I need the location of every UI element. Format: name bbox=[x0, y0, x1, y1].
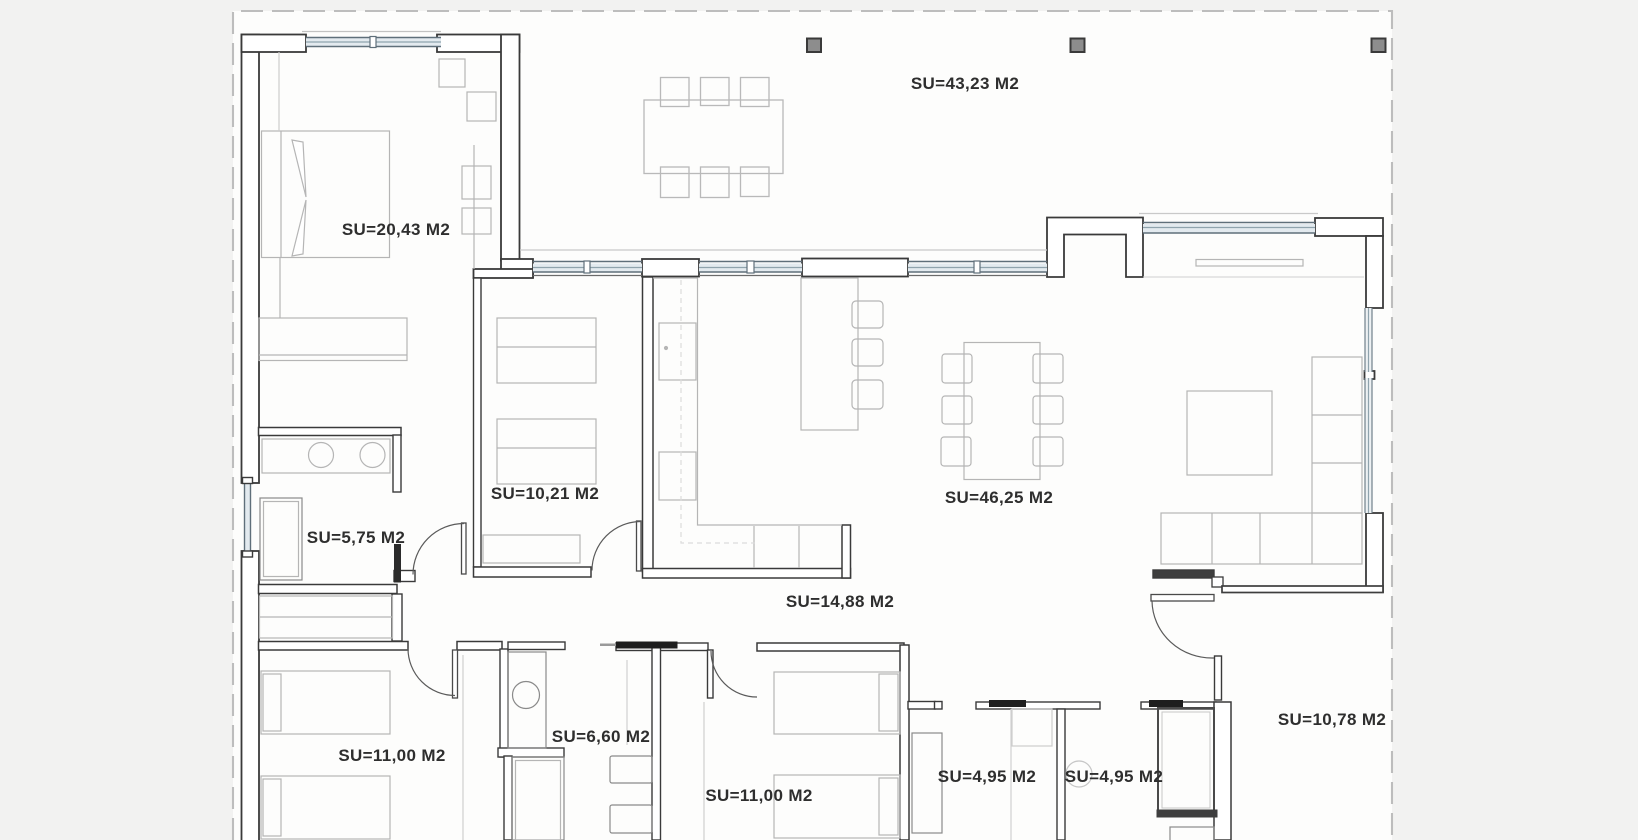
svg-text:SU=4,95 M2: SU=4,95 M2 bbox=[1065, 767, 1163, 786]
svg-text:SU=43,23 M2: SU=43,23 M2 bbox=[911, 74, 1019, 93]
svg-text:SU=20,43 M2: SU=20,43 M2 bbox=[342, 220, 450, 239]
svg-text:SU=14,88 M2: SU=14,88 M2 bbox=[786, 592, 894, 611]
svg-text:SU=4,95 M2: SU=4,95 M2 bbox=[938, 767, 1036, 786]
svg-text:SU=11,00 M2: SU=11,00 M2 bbox=[338, 746, 445, 765]
svg-text:SU=10,78 M2: SU=10,78 M2 bbox=[1278, 710, 1386, 729]
svg-text:SU=5,75 M2: SU=5,75 M2 bbox=[307, 528, 405, 547]
svg-text:SU=10,21 M2: SU=10,21 M2 bbox=[491, 484, 599, 503]
svg-text:SU=11,00 M2: SU=11,00 M2 bbox=[705, 786, 812, 805]
svg-text:SU=46,25 M2: SU=46,25 M2 bbox=[945, 488, 1053, 507]
svg-text:SU=6,60 M2: SU=6,60 M2 bbox=[552, 727, 650, 746]
